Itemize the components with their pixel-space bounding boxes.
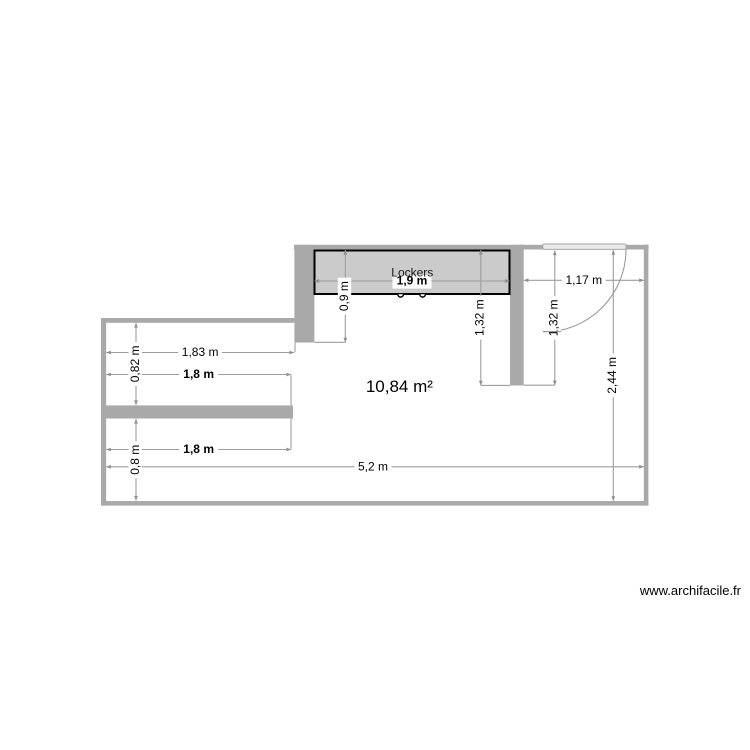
svg-text:1,8 m: 1,8 m [183,442,214,456]
svg-text:www.archifacile.fr: www.archifacile.fr [639,583,742,598]
svg-text:1,8 m: 1,8 m [183,367,214,381]
svg-text:0,9 m: 0,9 m [337,281,351,311]
svg-text:10,84 m²: 10,84 m² [366,377,433,396]
svg-text:2,44 m: 2,44 m [605,357,619,394]
svg-text:0,82 m: 0,82 m [128,346,142,383]
svg-text:Lockers: Lockers [391,265,433,279]
svg-text:1,17 m: 1,17 m [565,273,602,287]
svg-text:1,32 m: 1,32 m [547,300,561,337]
svg-text:0,8 m: 0,8 m [128,445,142,475]
svg-text:1,83 m: 1,83 m [182,345,219,359]
svg-text:5,2 m: 5,2 m [358,459,388,473]
svg-text:1,32 m: 1,32 m [473,299,487,336]
